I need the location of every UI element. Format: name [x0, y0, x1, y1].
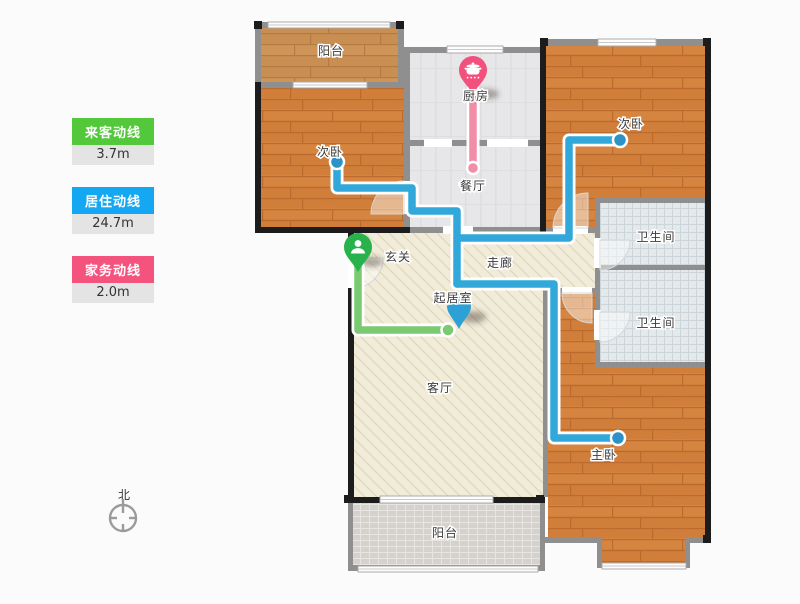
window-living-slider	[380, 496, 493, 503]
label-entry: 玄关	[385, 249, 411, 264]
window-master-bay	[602, 563, 686, 569]
floorplan-stage: 来客动线 3.7m 居住动线 24.7m 家务动线 2.0m	[0, 0, 800, 600]
label-kitchen: 厨房	[463, 88, 489, 103]
legend-item-living: 居住动线 24.7m	[72, 187, 154, 234]
endpoint-visitor	[442, 324, 455, 337]
legend-visitor-value: 3.7m	[72, 145, 154, 165]
legend-item-visitor: 来客动线 3.7m	[72, 118, 154, 165]
endpoint-bedroom-right	[613, 133, 627, 147]
window-balcony-top	[268, 22, 390, 28]
label-bedroom-right: 次卧	[618, 117, 644, 131]
label-balcony-bottom: 阳台	[432, 525, 458, 540]
label-corridor: 走廊	[487, 255, 513, 270]
label-dining: 餐厅	[460, 178, 486, 193]
legend-living-value: 24.7m	[72, 214, 154, 234]
legend-housework-label: 家务动线	[72, 256, 154, 283]
label-bedroom-left: 次卧	[317, 145, 343, 159]
compass: 北	[110, 488, 136, 531]
route-legend: 来客动线 3.7m 居住动线 24.7m 家务动线 2.0m	[72, 118, 154, 325]
window-balcony-bottom	[358, 566, 538, 572]
legend-living-label: 居住动线	[72, 187, 154, 214]
legend-visitor-label: 来客动线	[72, 118, 154, 145]
room-floors	[261, 28, 705, 565]
label-living-point: 起居室	[433, 290, 472, 305]
window-bedroom-right	[598, 39, 656, 46]
label-master: 主卧	[591, 448, 617, 462]
label-bath-bottom: 卫生间	[636, 316, 675, 330]
legend-item-housework: 家务动线 2.0m	[72, 256, 154, 303]
window-bedroom-left-balcony	[293, 82, 367, 88]
endpoint-housework	[467, 162, 479, 174]
label-balcony-top: 阳台	[318, 43, 344, 58]
window-kitchen	[447, 46, 503, 53]
legend-housework-value: 2.0m	[72, 283, 154, 303]
label-living: 客厅	[427, 380, 453, 395]
endpoint-master	[611, 431, 625, 445]
label-bath-top: 卫生间	[636, 230, 675, 244]
